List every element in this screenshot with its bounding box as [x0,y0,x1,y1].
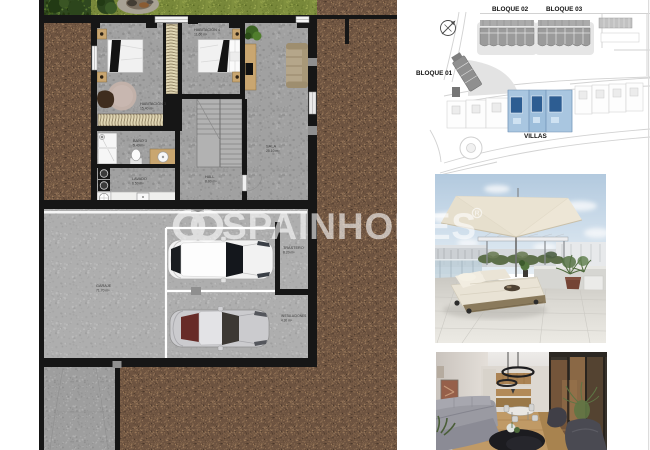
svg-text:BLOQUE 01: BLOQUE 01 [416,70,453,77]
svg-text:R: R [474,211,479,218]
svg-text:25.10 m²: 25.10 m² [266,149,280,153]
svg-text:6.50 m²: 6.50 m² [132,182,144,186]
svg-text:GARAJE: GARAJE [96,284,112,288]
svg-text:8.00 m²: 8.00 m² [205,180,217,184]
svg-text:BAÑO 3: BAÑO 3 [133,138,147,143]
svg-text:5.40 m²: 5.40 m² [133,144,145,148]
svg-text:SPAINHOMES: SPAINHOMES [222,206,477,247]
svg-text:SALA: SALA [266,144,277,149]
svg-text:HABITACIÓN 4: HABITACIÓN 4 [194,27,220,32]
svg-text:BLOQUE 03: BLOQUE 03 [546,6,583,13]
svg-text:8.20 m²: 8.20 m² [283,251,295,255]
svg-text:BLOQUE 02: BLOQUE 02 [492,6,529,13]
svg-text:HABITACIÓN 3: HABITACIÓN 3 [140,101,166,106]
svg-text:71.70 m²: 71.70 m² [96,289,110,293]
svg-text:4.30 m²: 4.30 m² [281,319,292,323]
svg-text:11.60 m²: 11.60 m² [194,33,208,37]
svg-text:15.40 m²: 15.40 m² [140,107,154,111]
svg-text:INSTALACIONES: INSTALACIONES [281,314,306,318]
svg-text:LAVADO: LAVADO [132,177,147,181]
svg-text:HALL: HALL [205,175,215,179]
svg-text:VILLAS: VILLAS [524,133,547,140]
